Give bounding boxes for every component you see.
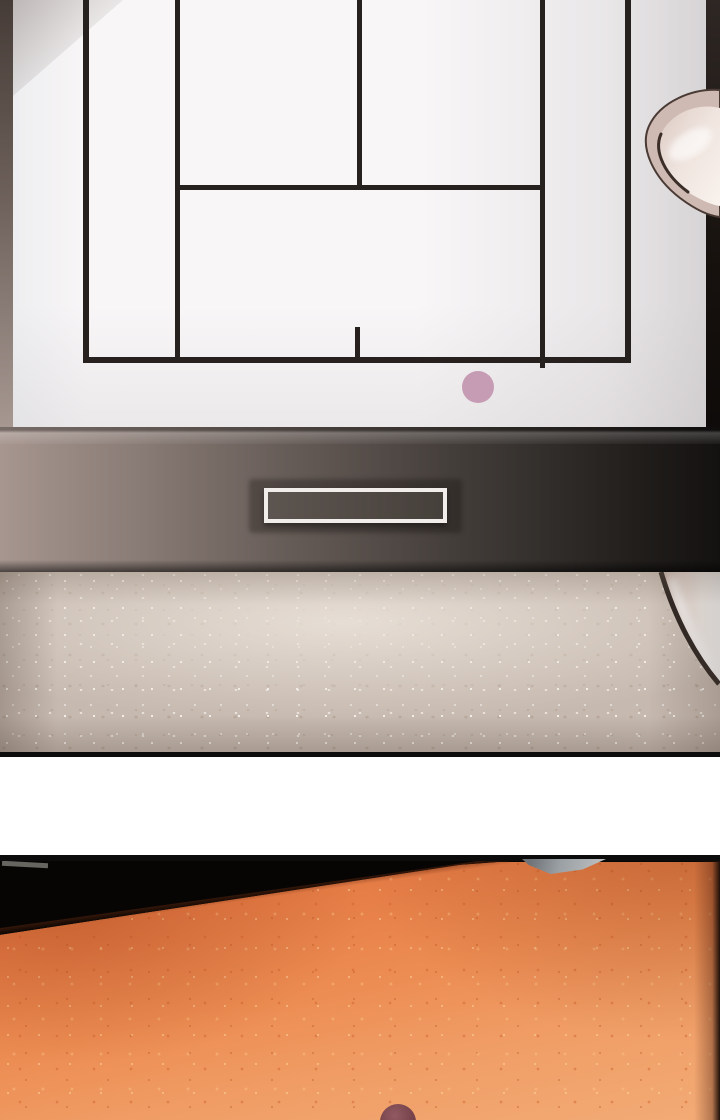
- tv-vent-slot: [264, 488, 447, 523]
- court-line: [625, 0, 631, 363]
- panel-2-orange-floor: [0, 855, 720, 1120]
- carpet: [0, 572, 720, 752]
- panel-gutter: [0, 757, 720, 855]
- pink-ball-dot: [462, 371, 494, 403]
- court-line: [83, 0, 89, 363]
- court-line: [540, 0, 545, 368]
- carpet-shading: [0, 572, 720, 752]
- orange-floor: [0, 855, 720, 1120]
- right-edge-shadow: [694, 855, 720, 1120]
- tv-frame: [0, 427, 720, 572]
- dark-room-glint: [2, 861, 48, 868]
- panel-1-tv-closeup: [0, 0, 720, 757]
- fingertip: [640, 86, 720, 224]
- court-line: [175, 0, 180, 363]
- court-line: [355, 327, 360, 360]
- panel-2-top-border: [0, 855, 720, 861]
- tv-bezel-left: [0, 0, 13, 435]
- court-lines: [0, 0, 720, 435]
- court-line: [357, 0, 362, 190]
- court-line: [175, 185, 545, 190]
- comic-strip: [0, 0, 720, 1120]
